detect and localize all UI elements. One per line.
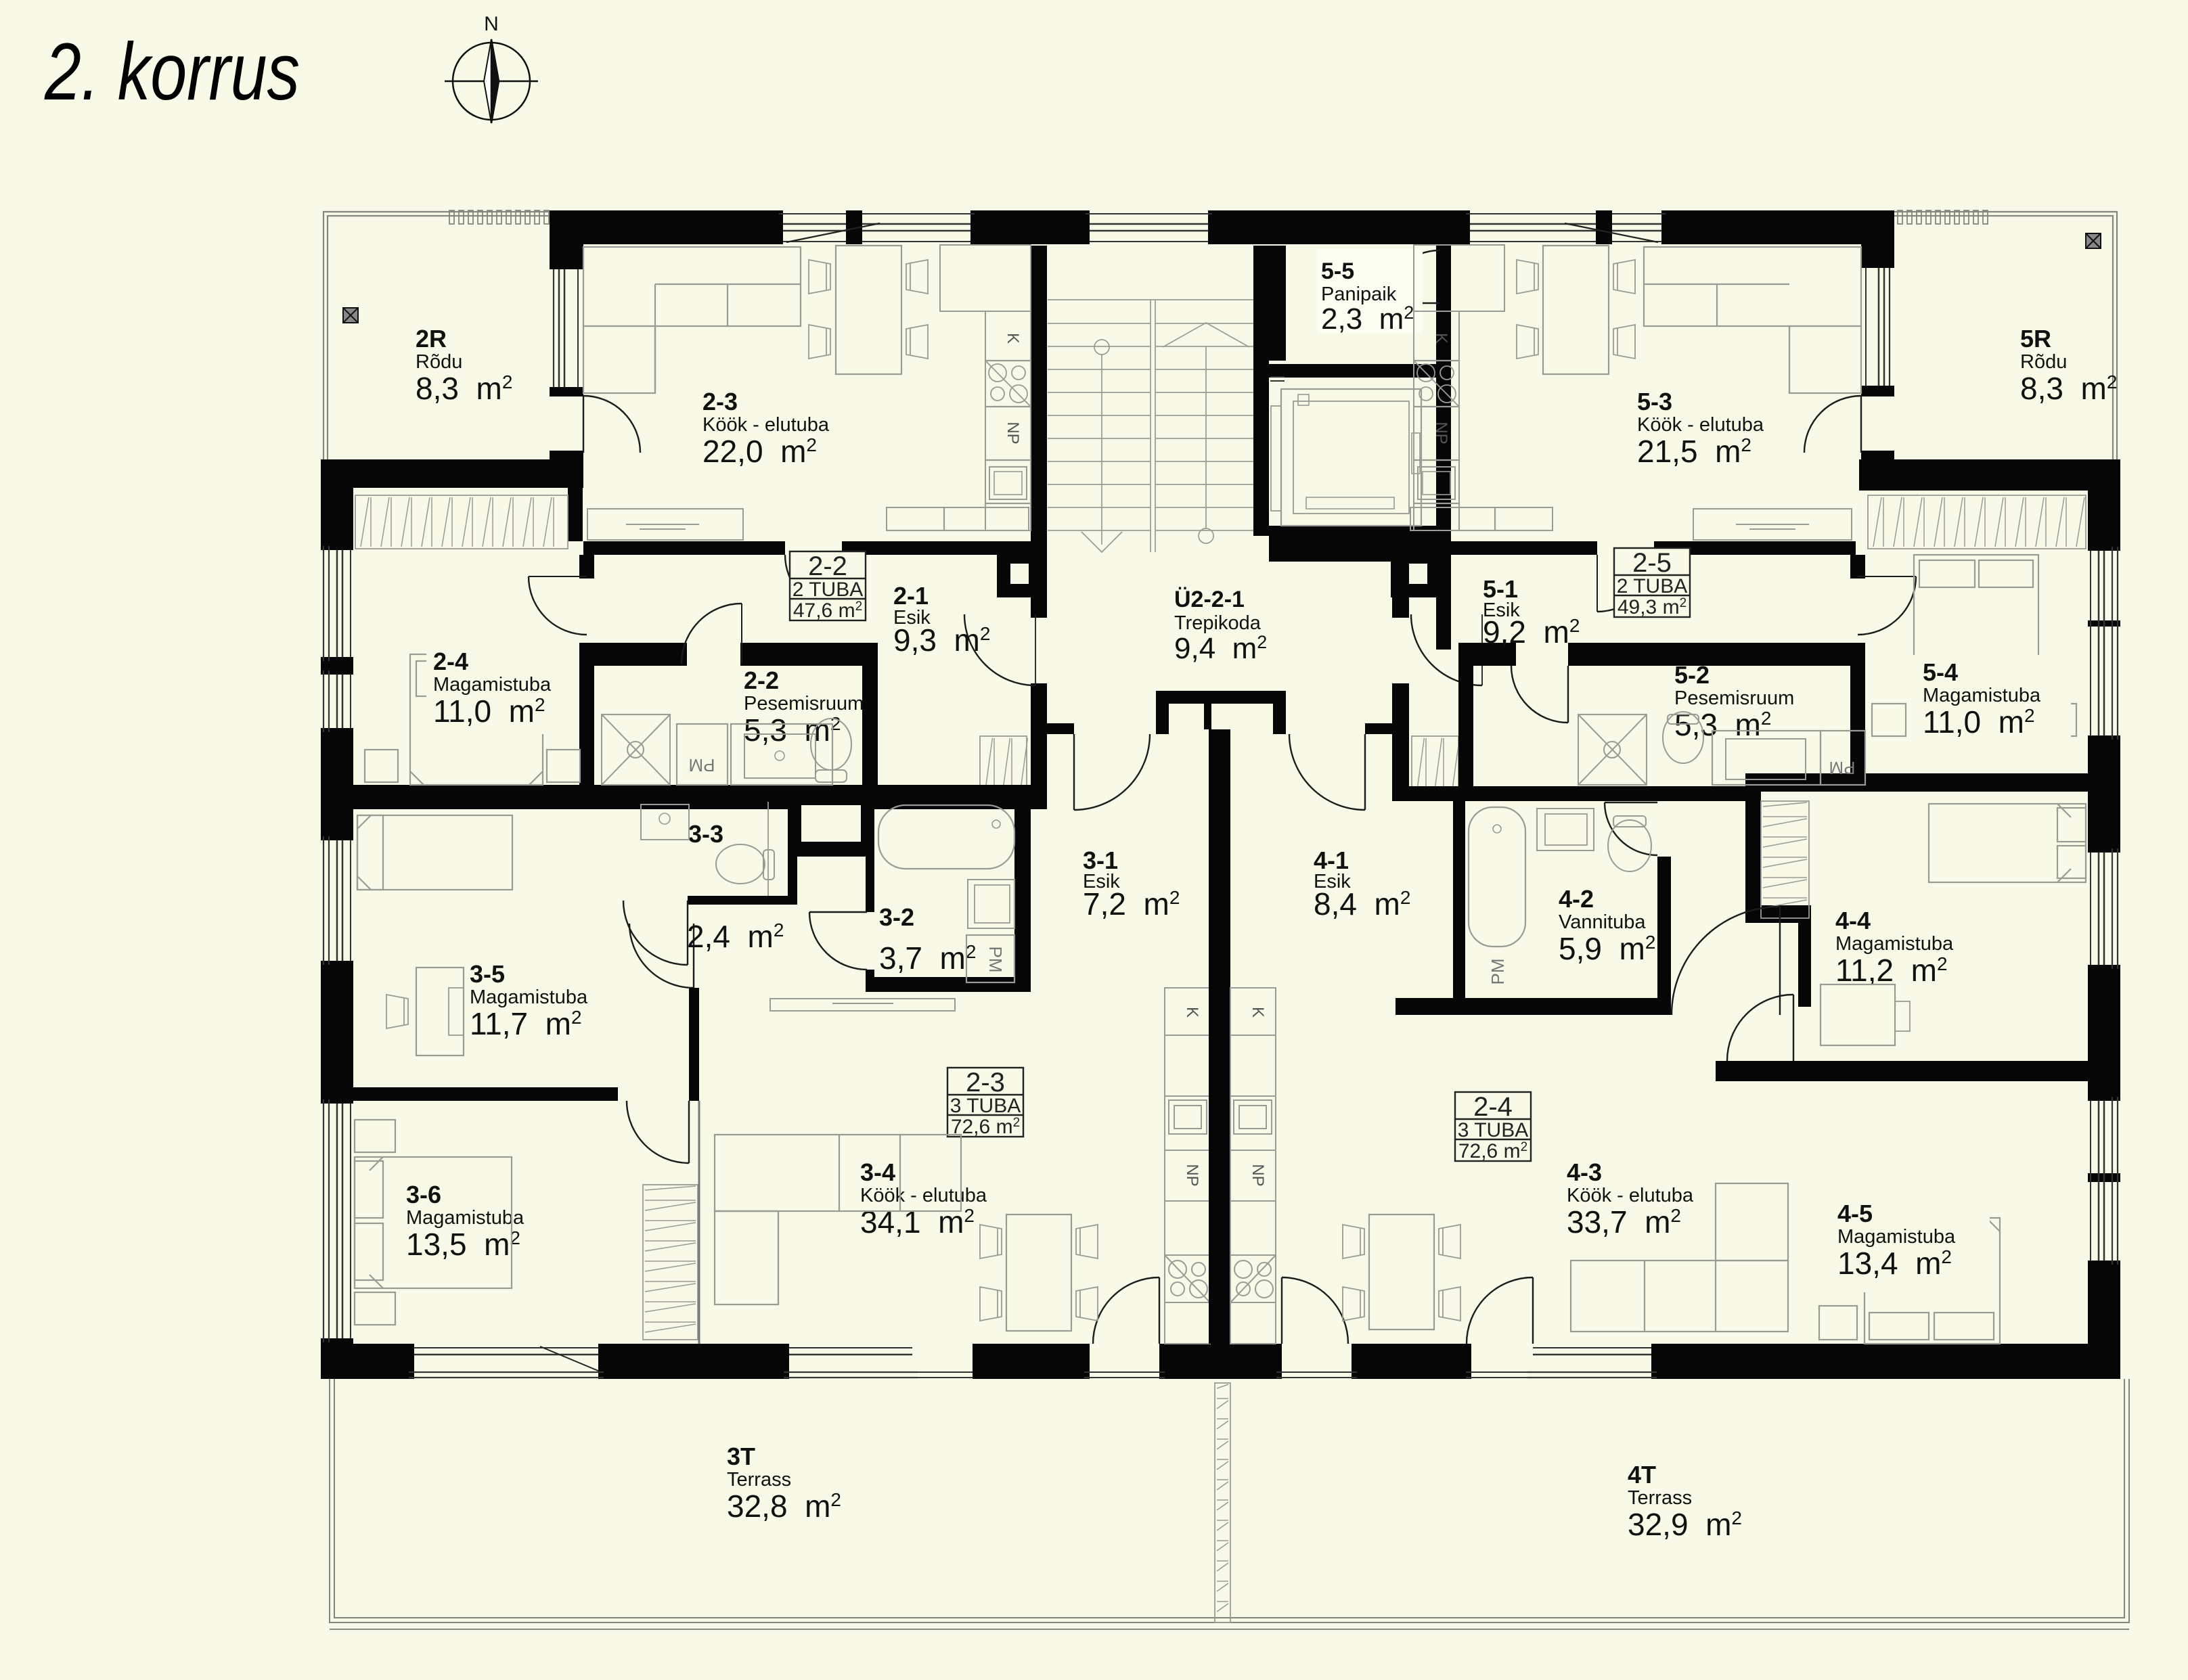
svg-text:2,3 m2: 2,3 m2 <box>1321 302 1414 336</box>
svg-text:49,3 m2: 49,3 m2 <box>1617 596 1687 618</box>
svg-text:11,7 m2: 11,7 m2 <box>470 1006 582 1041</box>
svg-text:PM: PM <box>689 755 715 775</box>
svg-text:5-1: 5-1 <box>1483 575 1518 603</box>
svg-text:9,4 m2: 9,4 m2 <box>1174 632 1267 665</box>
svg-text:3-2: 3-2 <box>879 903 914 931</box>
svg-text:Magamistuba: Magamistuba <box>433 674 552 696</box>
svg-text:Magamistuba: Magamistuba <box>1835 933 1954 955</box>
svg-text:Rõdu: Rõdu <box>2020 351 2067 373</box>
svg-text:9,3 m2: 9,3 m2 <box>893 622 990 658</box>
svg-text:5-4: 5-4 <box>1923 658 1958 686</box>
svg-text:11,0 m2: 11,0 m2 <box>433 694 545 729</box>
svg-text:5-3: 5-3 <box>1637 388 1672 415</box>
svg-text:9,2 m2: 9,2 m2 <box>1483 614 1580 650</box>
svg-text:4-2: 4-2 <box>1559 885 1594 913</box>
svg-text:4-5: 4-5 <box>1837 1200 1873 1227</box>
svg-text:Köök - elutuba: Köök - elutuba <box>1567 1185 1694 1206</box>
svg-text:Vannituba: Vannituba <box>1559 911 1646 933</box>
svg-text:Magamistuba: Magamistuba <box>1837 1226 1956 1248</box>
svg-text:2-3: 2-3 <box>966 1068 1005 1097</box>
svg-text:Magamistuba: Magamistuba <box>406 1207 524 1229</box>
svg-text:3 TUBA: 3 TUBA <box>1458 1119 1529 1141</box>
svg-text:Pesemisruum: Pesemisruum <box>744 693 864 714</box>
svg-text:Magamistuba: Magamistuba <box>1923 685 2041 706</box>
svg-text:8,3 m2: 8,3 m2 <box>2020 371 2117 406</box>
svg-text:2-2: 2-2 <box>744 666 779 694</box>
svg-text:13,5 m2: 13,5 m2 <box>406 1227 520 1262</box>
svg-text:32,8 m2: 32,8 m2 <box>727 1489 841 1524</box>
svg-text:2. korrus: 2. korrus <box>44 26 300 117</box>
svg-text:Rõdu: Rõdu <box>416 351 462 373</box>
svg-text:5,3 m2: 5,3 m2 <box>744 712 841 748</box>
svg-text:3-5: 3-5 <box>470 960 505 988</box>
svg-text:2-5: 2-5 <box>1632 548 1672 578</box>
svg-text:NP: NP <box>1249 1164 1267 1186</box>
svg-text:33,7 m2: 33,7 m2 <box>1567 1204 1681 1240</box>
svg-text:4-4: 4-4 <box>1835 907 1871 934</box>
svg-text:72,6 m2: 72,6 m2 <box>1458 1140 1527 1162</box>
svg-text:7,2 m2: 7,2 m2 <box>1083 886 1180 922</box>
svg-text:PM: PM <box>1488 959 1508 985</box>
svg-text:3 TUBA: 3 TUBA <box>950 1095 1021 1117</box>
svg-text:2-2: 2-2 <box>808 551 847 581</box>
svg-text:5R: 5R <box>2020 325 2051 353</box>
svg-text:47,6 m2: 47,6 m2 <box>793 599 862 622</box>
svg-text:2 TUBA: 2 TUBA <box>1617 575 1688 597</box>
svg-text:NP: NP <box>1432 422 1450 444</box>
svg-text:4-3: 4-3 <box>1567 1158 1602 1186</box>
svg-text:Terrass: Terrass <box>727 1469 791 1491</box>
svg-text:K: K <box>1004 333 1022 344</box>
svg-text:Trepikoda: Trepikoda <box>1174 612 1262 634</box>
svg-text:4T: 4T <box>1628 1461 1656 1489</box>
svg-text:K: K <box>1432 333 1450 344</box>
svg-text:K: K <box>1249 1007 1267 1018</box>
svg-text:8,3 m2: 8,3 m2 <box>416 371 512 406</box>
svg-text:3-4: 3-4 <box>860 1158 895 1186</box>
svg-text:13,4 m2: 13,4 m2 <box>1837 1246 1952 1281</box>
svg-text:Köök - elutuba: Köök - elutuba <box>702 414 830 436</box>
svg-text:K: K <box>1183 1007 1201 1018</box>
svg-text:NP: NP <box>1183 1164 1201 1186</box>
svg-text:NP: NP <box>1004 422 1022 444</box>
svg-text:N: N <box>484 13 499 35</box>
svg-text:8,4 m2: 8,4 m2 <box>1314 886 1410 922</box>
svg-text:Terrass: Terrass <box>1628 1487 1692 1509</box>
svg-text:2-4: 2-4 <box>1473 1092 1513 1122</box>
svg-text:Magamistuba: Magamistuba <box>470 986 588 1008</box>
svg-text:2-3: 2-3 <box>702 388 738 415</box>
svg-text:22,0 m2: 22,0 m2 <box>702 434 817 469</box>
svg-text:2R: 2R <box>416 325 447 353</box>
svg-text:3-1: 3-1 <box>1083 846 1118 874</box>
svg-text:3T: 3T <box>727 1443 755 1470</box>
svg-text:21,5 m2: 21,5 m2 <box>1637 434 1751 469</box>
svg-text:34,1 m2: 34,1 m2 <box>860 1204 975 1240</box>
svg-text:PM: PM <box>1829 758 1856 778</box>
svg-text:11,2 m2: 11,2 m2 <box>1835 953 1948 988</box>
svg-text:2,4 m2: 2,4 m2 <box>687 919 784 954</box>
svg-text:PM: PM <box>985 947 1006 973</box>
svg-text:Pesemisruum: Pesemisruum <box>1674 687 1794 709</box>
svg-text:3-3: 3-3 <box>688 820 723 848</box>
svg-text:3-6: 3-6 <box>406 1181 441 1208</box>
svg-text:Köök - elutuba: Köök - elutuba <box>1637 414 1764 436</box>
svg-text:Köök - elutuba: Köök - elutuba <box>860 1185 987 1206</box>
svg-text:5,9 m2: 5,9 m2 <box>1559 931 1655 966</box>
svg-text:5-5: 5-5 <box>1321 258 1354 284</box>
svg-text:32,9 m2: 32,9 m2 <box>1628 1507 1742 1542</box>
svg-text:5-2: 5-2 <box>1674 661 1710 689</box>
svg-text:Ü2-2-1: Ü2-2-1 <box>1174 587 1245 612</box>
svg-text:3,7 m2: 3,7 m2 <box>879 940 976 976</box>
svg-text:4-1: 4-1 <box>1314 846 1349 874</box>
svg-text:2 TUBA: 2 TUBA <box>792 578 864 601</box>
svg-text:2-4: 2-4 <box>433 648 468 675</box>
svg-text:2-1: 2-1 <box>893 582 929 610</box>
svg-text:11,0 m2: 11,0 m2 <box>1923 704 2035 740</box>
